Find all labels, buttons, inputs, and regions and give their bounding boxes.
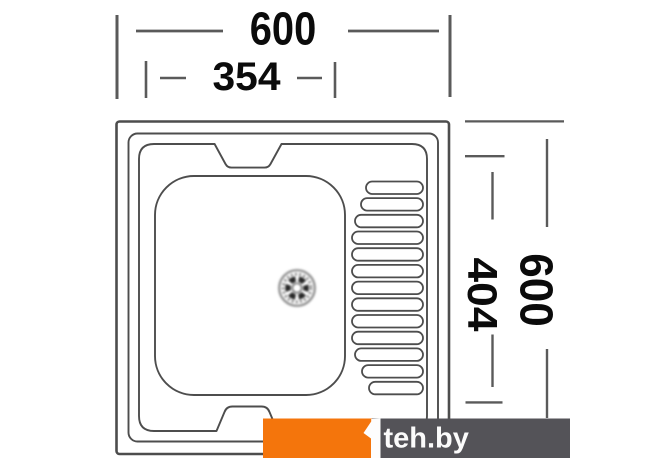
svg-text:600: 600: [250, 3, 317, 55]
svg-text:404: 404: [459, 258, 506, 332]
svg-text:teh.by: teh.by: [384, 423, 469, 455]
svg-text:600: 600: [510, 253, 562, 327]
svg-text:354: 354: [213, 55, 282, 99]
